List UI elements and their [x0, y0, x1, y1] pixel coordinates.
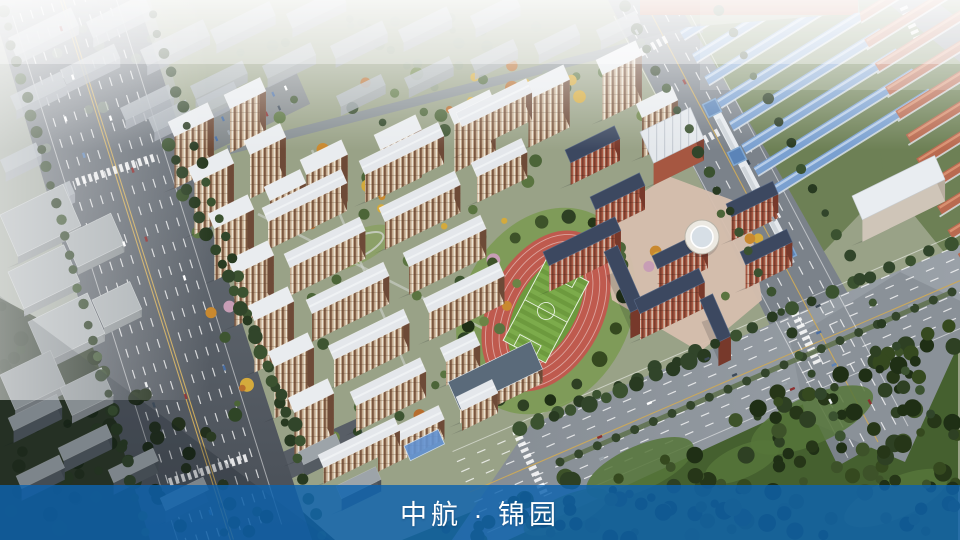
rendering-viewport: 中航 · 锦园	[0, 0, 960, 540]
project-title-caption: 中航 · 锦园	[400, 493, 560, 532]
aerial-site-rendering	[0, 0, 960, 540]
caption-banner: 中航 · 锦园	[0, 485, 960, 540]
